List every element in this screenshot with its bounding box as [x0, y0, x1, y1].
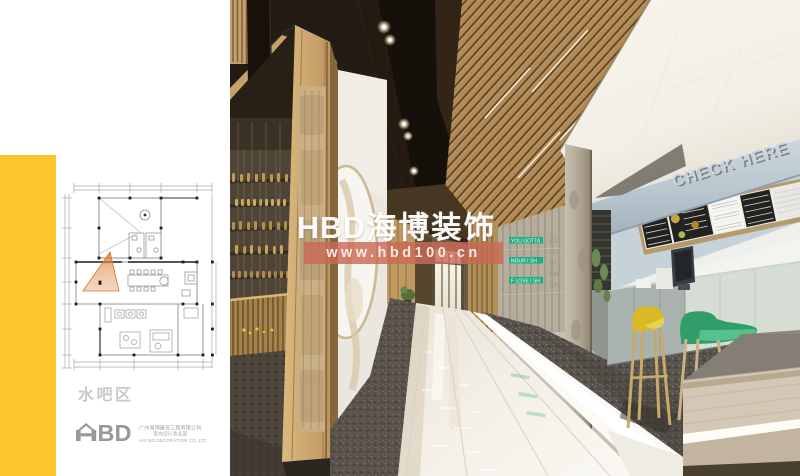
svg-text:NOUR I SH: NOUR I SH	[511, 259, 537, 265]
svg-text:CA: CA	[549, 282, 559, 289]
svg-text:SM: SM	[549, 271, 559, 278]
svg-text:TA: TA	[549, 260, 557, 267]
svg-text:YOU GOTTA: YOU GOTTA	[511, 239, 541, 245]
svg-text:室内设计事业部: 室内设计事业部	[153, 431, 187, 438]
svg-text:广州海博建设工程有限公司: 广州海博建设工程有限公司	[139, 424, 201, 432]
svg-text:HAI BO DECORATION CO.,LTD: HAI BO DECORATION CO.,LTD	[139, 438, 206, 443]
svg-text:F LOVE I SH: F LOVE I SH	[511, 279, 540, 285]
svg-text:BD: BD	[98, 421, 132, 445]
svg-text:PO: PO	[549, 249, 558, 256]
svg-text:SA: SA	[549, 238, 558, 245]
